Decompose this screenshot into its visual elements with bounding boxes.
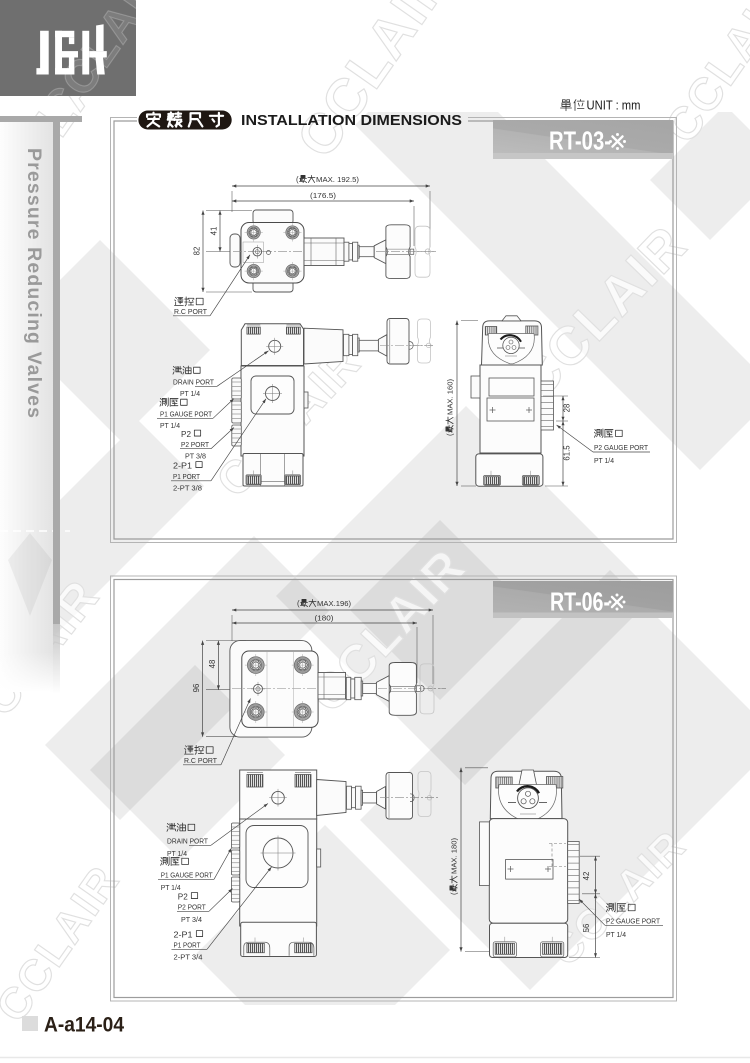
svg-text:P1 PORT: P1 PORT xyxy=(173,472,200,481)
svg-text:MAX. 180): MAX. 180) xyxy=(450,837,459,874)
svg-text:(: ( xyxy=(446,433,455,436)
svg-text:R.C PORT: R.C PORT xyxy=(174,307,207,316)
svg-text:RT-03-: RT-03- xyxy=(549,126,611,156)
svg-text:61.5: 61.5 xyxy=(563,445,572,461)
svg-text:DRAIN PORT: DRAIN PORT xyxy=(173,378,214,387)
svg-text:INSTALLATION DIMENSIONS: INSTALLATION DIMENSIONS xyxy=(241,112,462,129)
svg-text:Pressure Reducing Valves: Pressure Reducing Valves xyxy=(23,148,45,418)
svg-text:P2 GAUGE PORT: P2 GAUGE PORT xyxy=(594,443,648,452)
svg-text:PT 1/4: PT 1/4 xyxy=(606,930,626,939)
svg-text:P1 GAUGE PORT: P1 GAUGE PORT xyxy=(160,410,212,419)
svg-text:RT-06-: RT-06- xyxy=(550,587,610,617)
svg-text:82: 82 xyxy=(193,247,202,256)
svg-text:48: 48 xyxy=(208,660,217,669)
svg-text:PT 1/4: PT 1/4 xyxy=(167,849,187,858)
svg-text:DRAIN PORT: DRAIN PORT xyxy=(167,837,208,846)
svg-text:UNIT : mm: UNIT : mm xyxy=(587,99,641,113)
svg-text:P2: P2 xyxy=(181,430,192,439)
svg-text:2-PT 3/4: 2-PT 3/4 xyxy=(174,953,203,962)
svg-text:PT 1/4: PT 1/4 xyxy=(161,883,181,892)
svg-text:P1 GAUGE PORT: P1 GAUGE PORT xyxy=(161,871,213,880)
svg-text:(: ( xyxy=(297,599,300,608)
svg-text:CCLAIR: CCLAIR xyxy=(0,857,129,1031)
svg-text:MAX. 160): MAX. 160) xyxy=(446,378,455,415)
svg-text:(180): (180) xyxy=(315,614,335,623)
svg-text:PT 3/4: PT 3/4 xyxy=(181,915,202,924)
svg-text:28: 28 xyxy=(563,404,572,413)
svg-text:A-a14-04: A-a14-04 xyxy=(44,1014,124,1037)
svg-text:2-P1: 2-P1 xyxy=(173,462,193,471)
svg-text:(: ( xyxy=(450,892,459,895)
svg-text:MAX.196): MAX.196) xyxy=(317,599,351,608)
svg-text:56: 56 xyxy=(582,924,591,933)
svg-text:41: 41 xyxy=(210,227,219,236)
svg-text:P2 PORT: P2 PORT xyxy=(178,903,206,912)
svg-text:(: ( xyxy=(296,175,299,184)
svg-text:2-PT 3/8: 2-PT 3/8 xyxy=(173,484,202,493)
svg-text:PT 3/8: PT 3/8 xyxy=(185,452,206,461)
svg-text:R.C PORT: R.C PORT xyxy=(184,756,217,765)
svg-text:P2: P2 xyxy=(178,893,189,902)
svg-text:PT 1/4: PT 1/4 xyxy=(180,389,200,398)
svg-text:(176.5): (176.5) xyxy=(310,191,337,200)
svg-text:P2 GAUGE PORT: P2 GAUGE PORT xyxy=(606,917,660,926)
svg-text:P2 PORT: P2 PORT xyxy=(181,440,209,449)
svg-text:2-P1: 2-P1 xyxy=(174,931,194,940)
svg-text:42: 42 xyxy=(582,872,591,881)
svg-text:MAX. 192.5): MAX. 192.5) xyxy=(316,175,360,184)
svg-text:PT 1/4: PT 1/4 xyxy=(160,421,180,430)
svg-text:PT 1/4: PT 1/4 xyxy=(594,456,614,465)
svg-text:96: 96 xyxy=(192,684,201,693)
svg-text:P1 PORT: P1 PORT xyxy=(174,941,201,950)
